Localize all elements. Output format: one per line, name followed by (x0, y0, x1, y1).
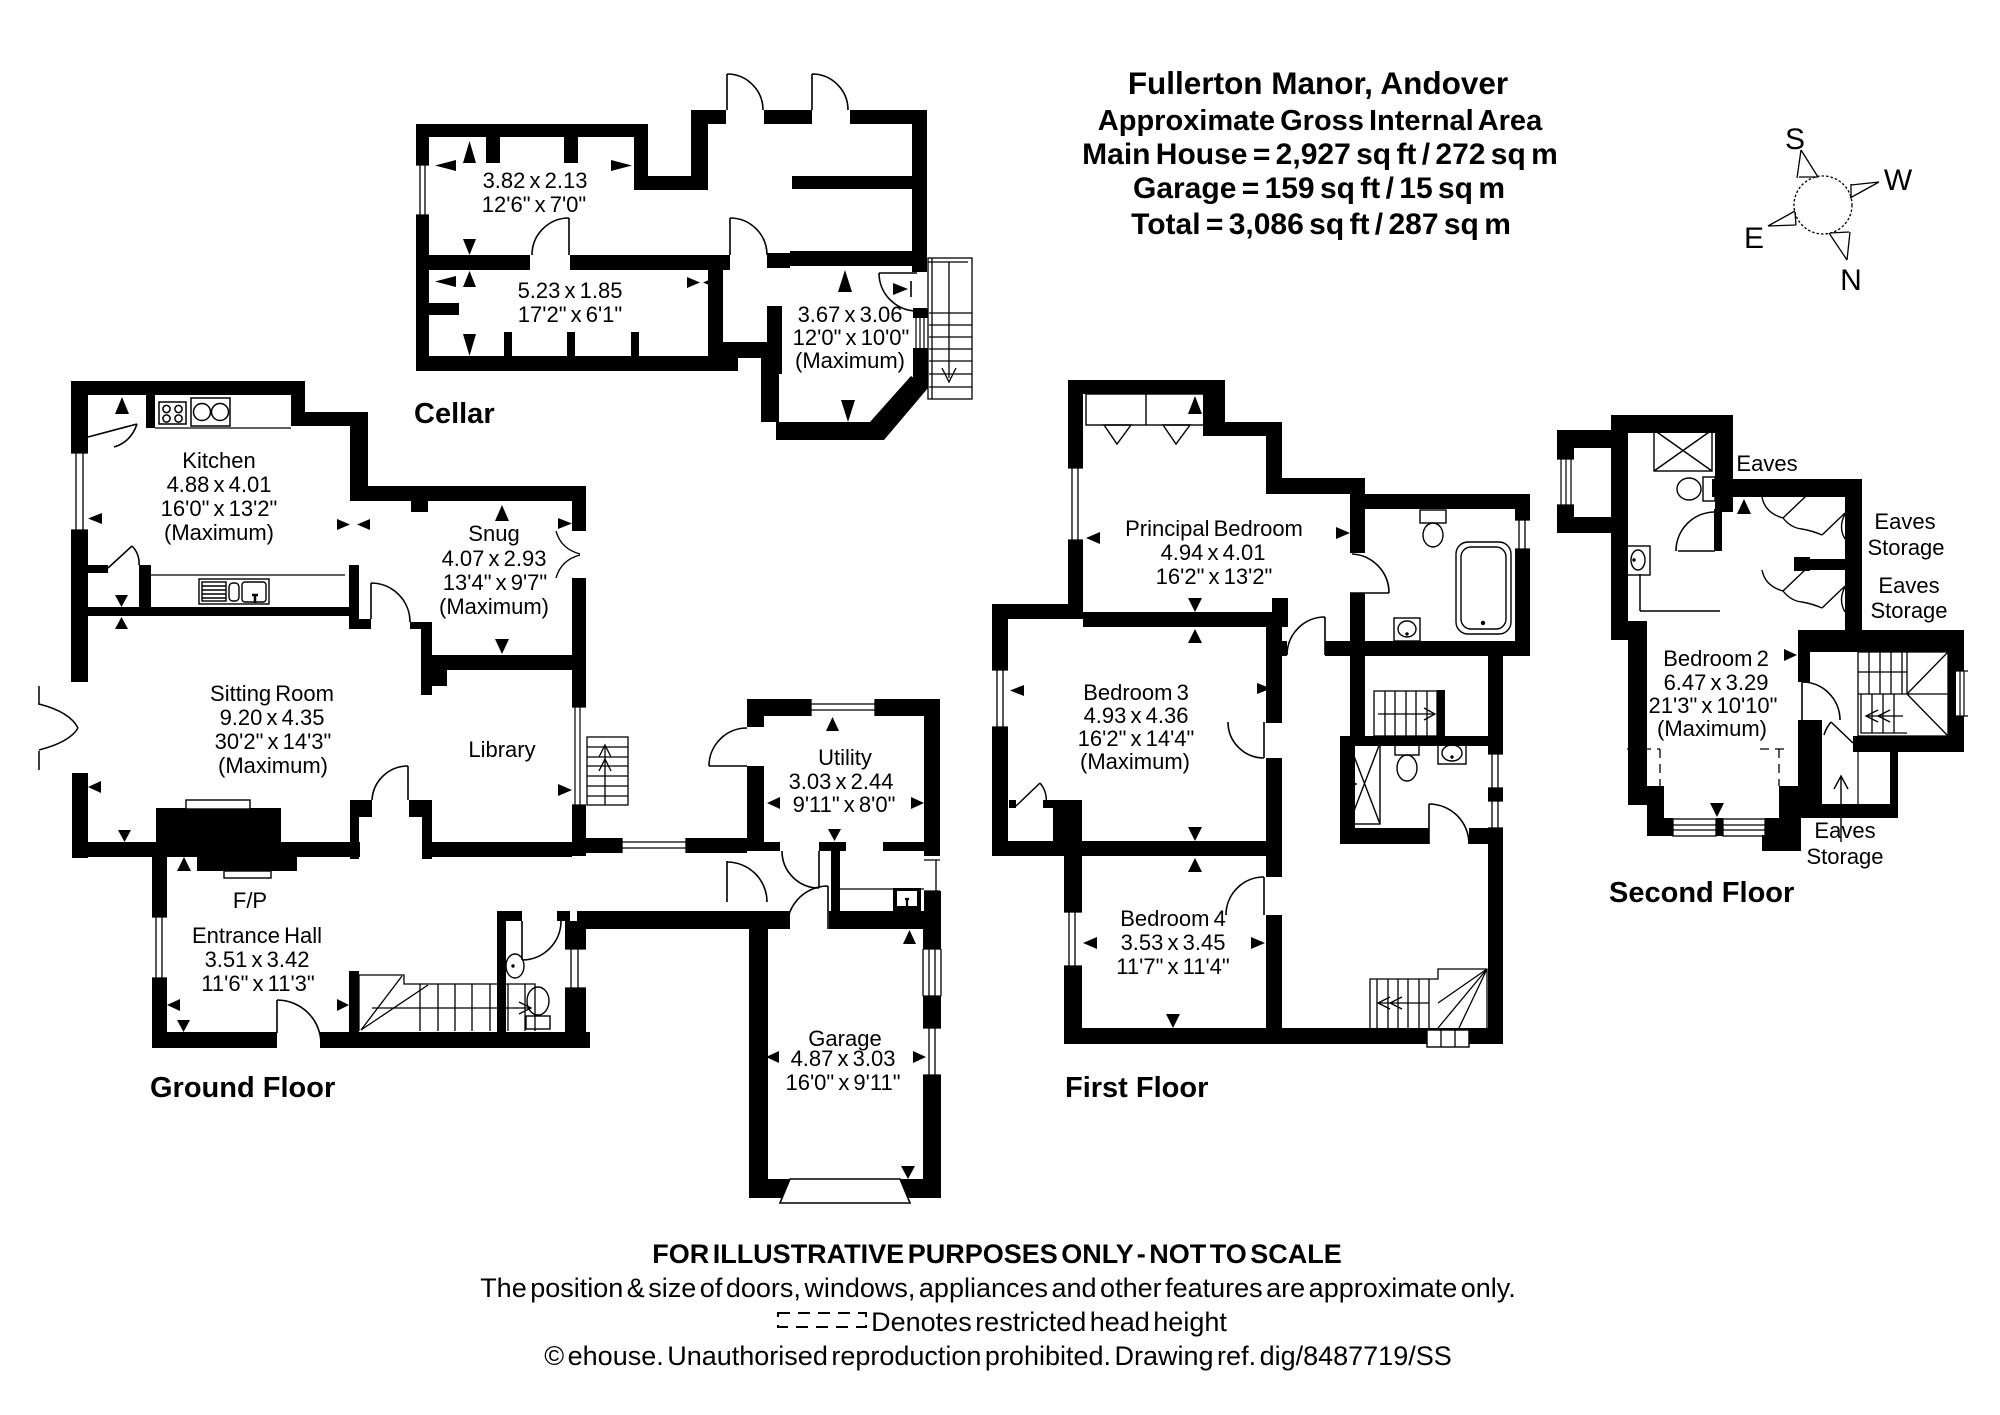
svg-text:W: W (1884, 164, 1913, 197)
svg-text:3.82 x 2.13: 3.82 x 2.13 (483, 168, 588, 193)
svg-text:9'11" x 8'0": 9'11" x 8'0" (793, 792, 896, 817)
svg-text:4.94 x 4.01: 4.94 x 4.01 (1161, 540, 1266, 565)
svg-text:Ground Floor: Ground Floor (150, 1072, 335, 1104)
svg-text:FOR ILLUSTRATIVE PURPOSES ONLY: FOR ILLUSTRATIVE PURPOSES ONLY - NOT TO … (652, 1239, 1342, 1269)
svg-text:9.20 x 4.35: 9.20 x 4.35 (220, 705, 325, 730)
svg-text:Main House = 2,927 sq ft / 272: Main House = 2,927 sq ft / 272 sq m (1082, 138, 1558, 171)
svg-text:(Maximum): (Maximum) (218, 753, 328, 778)
svg-text:Second Floor: Second Floor (1609, 877, 1794, 909)
svg-text:Approximate Gross Internal Are: Approximate Gross Internal Area (1098, 105, 1543, 137)
svg-text:11'7" x 11'4": 11'7" x 11'4" (1116, 954, 1229, 979)
svg-text:Sitting Room: Sitting Room (210, 681, 334, 706)
svg-text:Eaves: Eaves (1814, 818, 1875, 843)
svg-text:N: N (1840, 264, 1862, 297)
svg-text:Library: Library (468, 737, 535, 762)
svg-text:16'2" x 14'4": 16'2" x 14'4" (1078, 726, 1195, 751)
svg-text:13'4" x 9'7": 13'4" x 9'7" (443, 570, 547, 595)
svg-text:Bedroom 3: Bedroom 3 (1083, 680, 1189, 705)
svg-text:Fullerton Manor, Andover: Fullerton Manor, Andover (1128, 65, 1508, 101)
svg-text:(Maximum): (Maximum) (1657, 716, 1767, 741)
svg-text:S: S (1785, 123, 1805, 156)
svg-text:Bedroom 4: Bedroom 4 (1120, 906, 1226, 931)
svg-text:6.47 x 3.29: 6.47 x 3.29 (1664, 670, 1769, 695)
svg-text:11'6" x 11'3": 11'6" x 11'3" (201, 971, 314, 996)
svg-text:© ehouse. Unauthorised reprodu: © ehouse. Unauthorised reproduction proh… (544, 1341, 1451, 1371)
svg-text:Storage: Storage (1806, 844, 1883, 869)
svg-text:Kitchen: Kitchen (182, 448, 255, 473)
svg-text:16'0" x 9'11": 16'0" x 9'11" (785, 1070, 900, 1095)
svg-text:Principal Bedroom: Principal Bedroom (1125, 516, 1303, 541)
svg-text:(Maximum): (Maximum) (1080, 749, 1190, 774)
svg-text:3.03 x 2.44: 3.03 x 2.44 (789, 769, 894, 794)
svg-text:Eaves: Eaves (1736, 451, 1797, 476)
svg-text:Eaves: Eaves (1874, 509, 1935, 534)
svg-text:4.07 x 2.93: 4.07 x 2.93 (442, 546, 547, 571)
svg-text:3.67 x 3.06: 3.67 x 3.06 (798, 302, 903, 327)
svg-text:(Maximum): (Maximum) (439, 594, 549, 619)
svg-text:(Maximum): (Maximum) (795, 348, 905, 373)
svg-text:5.23 x 1.85: 5.23 x 1.85 (518, 278, 623, 303)
svg-text:30'2" x 14'3": 30'2" x 14'3" (215, 729, 332, 754)
svg-text:4.87 x 3.03: 4.87 x 3.03 (791, 1046, 896, 1071)
svg-text:Entrance Hall: Entrance Hall (192, 923, 322, 948)
svg-text:Cellar: Cellar (414, 398, 495, 430)
svg-text:E: E (1744, 222, 1764, 255)
svg-text:First Floor: First Floor (1065, 1072, 1208, 1104)
svg-text:4.93 x 4.36: 4.93 x 4.36 (1084, 703, 1189, 728)
svg-text:4.88 x 4.01: 4.88 x 4.01 (167, 472, 272, 497)
svg-text:12'0" x 10'0": 12'0" x 10'0" (793, 325, 910, 350)
svg-text:12'6" x 7'0": 12'6" x 7'0" (482, 192, 586, 217)
svg-text:17'2" x 6'1": 17'2" x 6'1" (518, 302, 622, 327)
svg-text:21'3" x 10'10": 21'3" x 10'10" (1649, 693, 1778, 718)
svg-text:Garage = 159 sq ft / 15 sq m: Garage = 159 sq ft / 15 sq m (1133, 172, 1505, 205)
svg-text:Total = 3,086 sq ft / 287 sq m: Total = 3,086 sq ft / 287 sq m (1131, 208, 1511, 241)
svg-text:16'0" x 13'2": 16'0" x 13'2" (161, 496, 278, 521)
svg-text:Bedroom 2: Bedroom 2 (1663, 646, 1769, 671)
svg-text:(Maximum): (Maximum) (164, 520, 274, 545)
svg-text:16'2" x 13'2": 16'2" x 13'2" (1156, 564, 1273, 589)
svg-text:3.53 x 3.45: 3.53 x 3.45 (1121, 930, 1226, 955)
svg-text:Storage: Storage (1867, 535, 1944, 560)
svg-text:F/P: F/P (233, 888, 267, 913)
svg-text:Denotes restricted head height: Denotes restricted head height (871, 1307, 1227, 1337)
svg-text:Utility: Utility (818, 745, 872, 770)
svg-text:Eaves: Eaves (1878, 573, 1939, 598)
svg-text:The position & size of doors,: The position & size of doors, windows, a… (480, 1273, 1516, 1303)
svg-text:3.51 x 3.42: 3.51 x 3.42 (205, 947, 310, 972)
svg-text:Storage: Storage (1870, 598, 1947, 623)
svg-text:Snug: Snug (468, 521, 519, 546)
